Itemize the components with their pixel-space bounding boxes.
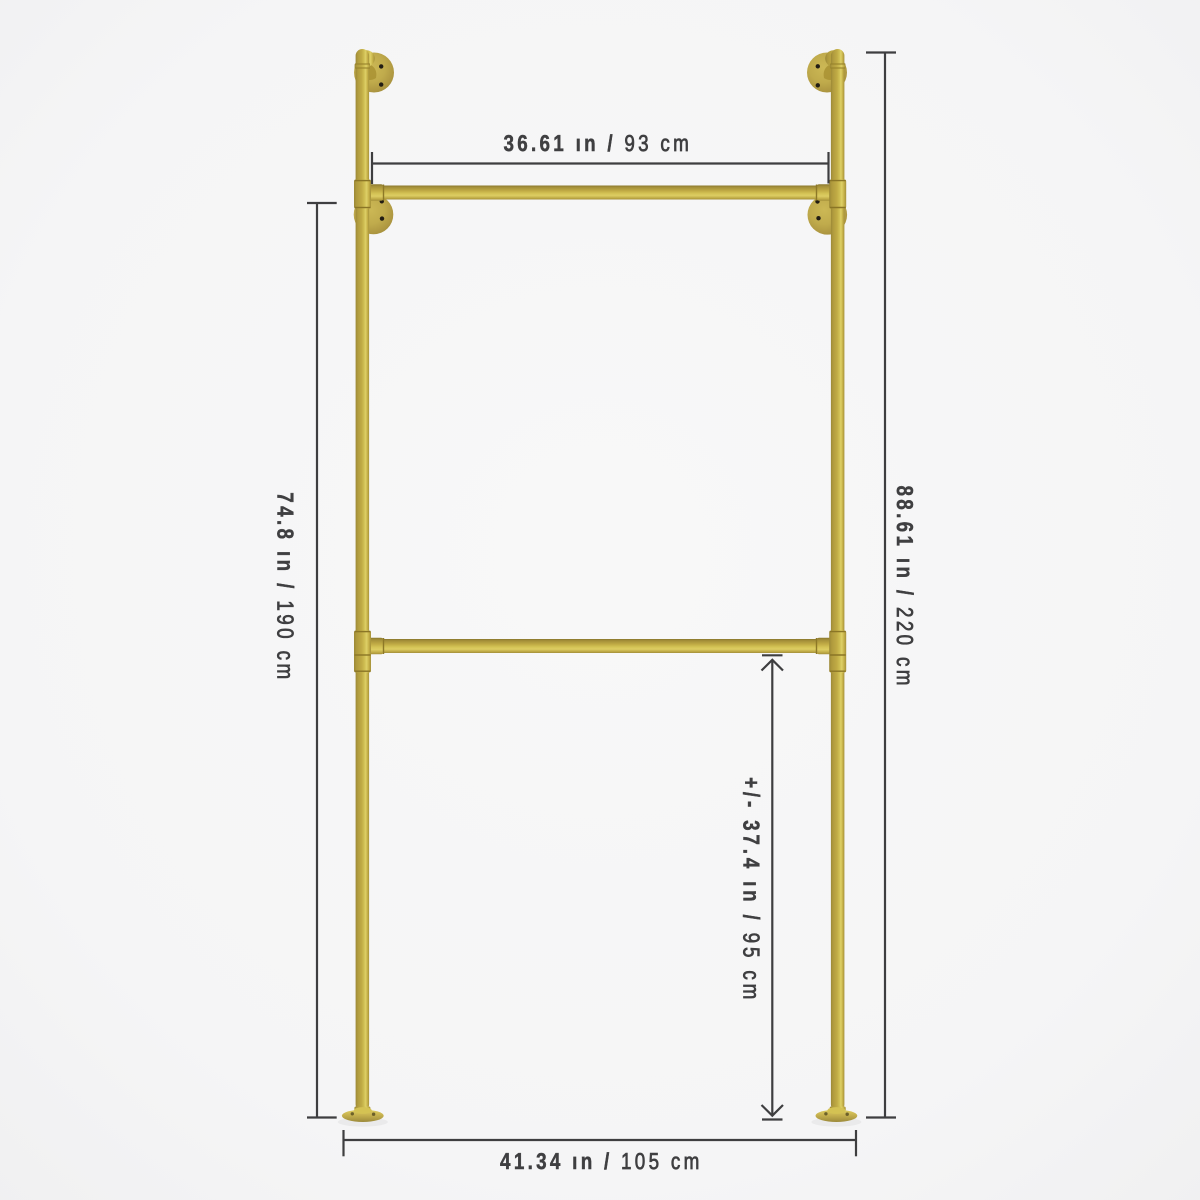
svg-text:41.34 ın / 105 cm: 41.34 ın / 105 cm [500,1148,701,1174]
svg-text:88.61 ın / 220 cm: 88.61 ın / 220 cm [892,485,918,687]
svg-text:36.61 ın / 93 cm: 36.61 ın / 93 cm [504,130,691,156]
svg-text:74.8 ın / 190 cm: 74.8 ın / 190 cm [273,492,299,681]
